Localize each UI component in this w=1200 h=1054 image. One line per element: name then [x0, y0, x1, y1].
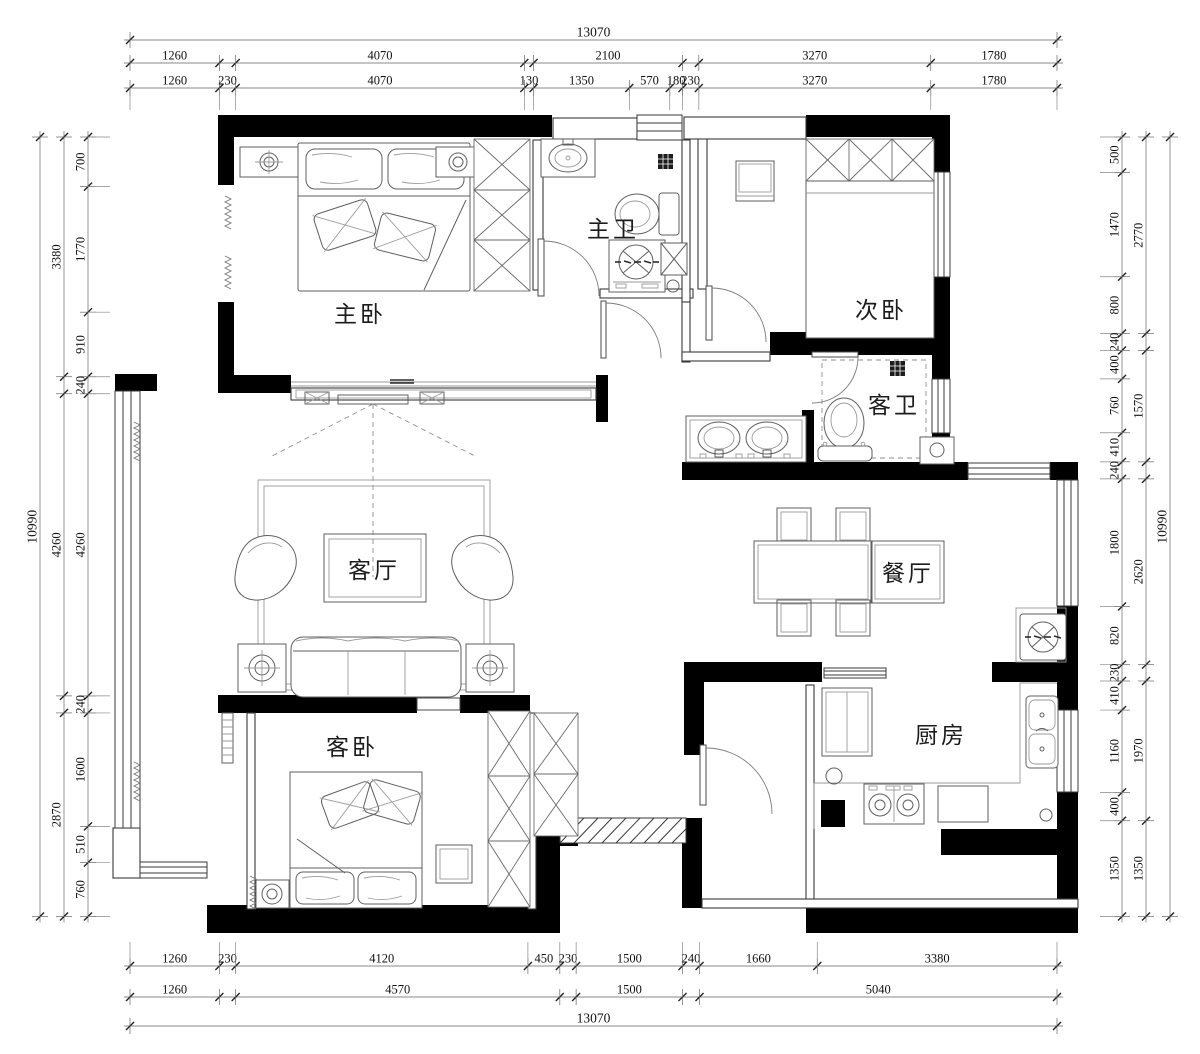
dim-label: 1160	[1108, 739, 1122, 764]
radiator-icon	[222, 713, 233, 763]
dim-label: 1470	[1108, 212, 1122, 237]
kitchen-sliding-door	[824, 668, 886, 678]
dim-label: 10990	[25, 510, 40, 544]
dim-label: 1350	[569, 74, 594, 88]
window-entry-hatch	[560, 818, 686, 843]
dining-table	[754, 541, 872, 603]
dim-label: 13070	[577, 1011, 611, 1026]
room-label-master-bath: 主卫	[587, 216, 639, 242]
closet	[806, 139, 934, 181]
dim-label: 230	[218, 74, 237, 88]
dim-label: 400	[1108, 355, 1122, 374]
room-label-kitchen: 厨房	[915, 722, 967, 748]
fridge	[822, 688, 872, 756]
kitchen: 厨房	[814, 608, 1066, 829]
dimension-chain-left-mid: 338042602870	[50, 131, 73, 922]
dim-label: 1500	[617, 983, 642, 997]
second-bedroom: 次卧	[736, 139, 934, 338]
dim-label: 700	[74, 152, 88, 171]
dim-label: 4570	[385, 983, 410, 997]
dining-chair	[836, 508, 870, 544]
dim-label: 240	[1108, 333, 1122, 352]
dim-label: 820	[1108, 626, 1122, 645]
dim-label: 230	[218, 952, 237, 966]
dim-label: 1770	[74, 237, 88, 262]
dimension-chain-bottom-row-b: 1260457015005040	[124, 983, 1063, 1006]
worktop-board	[938, 786, 988, 822]
dining-chair	[777, 600, 811, 636]
dim-label: 1260	[162, 49, 187, 63]
dim-label: 510	[74, 835, 88, 854]
dim-label: 4070	[368, 49, 393, 63]
dimension-chain-top-row-a: 12604070210032701780	[124, 49, 1063, 72]
dim-label: 2100	[596, 49, 621, 63]
toilet	[818, 398, 872, 461]
master-bedroom-door	[538, 239, 599, 296]
dim-label: 1260	[162, 983, 187, 997]
living-room: 客厅	[235, 380, 591, 697]
dimension-chain-left-overall: 10990	[25, 131, 49, 922]
dim-label: 230	[1108, 663, 1122, 682]
side-table	[238, 644, 286, 692]
dim-label: 1260	[162, 952, 187, 966]
dim-label: 760	[74, 880, 88, 899]
dining-chair	[777, 508, 811, 544]
window-south-of-guest-bath	[968, 463, 1050, 479]
dim-label: 3380	[925, 952, 950, 966]
sofa	[291, 637, 461, 697]
floor-plan-page: 主卧	[0, 0, 1200, 1054]
dimension-chain-left-inner: 700177091024042602401600510760	[74, 131, 111, 922]
dim-label: 3380	[50, 244, 64, 269]
window-spring-icon	[225, 256, 231, 289]
window-top-bath	[637, 115, 682, 140]
wardrobe	[474, 139, 530, 291]
dim-label: 410	[1108, 438, 1122, 457]
room-label-master-bedroom: 主卧	[334, 301, 386, 327]
dim-label: 230	[559, 952, 578, 966]
washing-machine	[609, 240, 665, 292]
window-southwest	[140, 862, 207, 878]
floor-plan-drawing: 主卧	[0, 0, 1200, 1054]
dim-label: 500	[1108, 145, 1122, 164]
dimension-chain-top-overall: 13070	[124, 25, 1063, 49]
dining-room: 餐厅	[754, 508, 944, 636]
dim-label: 1600	[74, 757, 88, 782]
dim-label: 240	[682, 952, 701, 966]
floor-drain-icon	[1040, 809, 1052, 821]
dining-chair	[836, 600, 870, 636]
dim-label: 1780	[981, 74, 1006, 88]
side-table	[436, 845, 472, 883]
dim-label: 1800	[1108, 530, 1122, 555]
dim-label: 230	[681, 74, 700, 88]
dimension-chain-bottom-row-a: 12602304120450230150024016603380	[124, 942, 1063, 974]
dimension-chain-top-row-b: 12602304070130135057018023032701780	[124, 74, 1063, 111]
tv-projection-lines	[272, 404, 475, 577]
guest-bedroom: 客卧	[222, 711, 578, 908]
dimension-chain-bottom-overall: 13070	[124, 1011, 1063, 1035]
hall-closet	[534, 713, 578, 836]
room-label-dining-room: 餐厅	[882, 560, 934, 586]
dim-label: 10990	[1155, 510, 1170, 544]
hallway-door	[601, 301, 661, 358]
dimension-annotations: 1307012604070210032701780126023040701301…	[25, 25, 1179, 1035]
second-bedroom-door	[706, 286, 766, 342]
armchair	[235, 536, 296, 600]
dim-label: 450	[534, 952, 553, 966]
window-dining-east	[1057, 480, 1078, 606]
floor-drain-icon	[658, 154, 673, 169]
dimension-chain-right-inner: 5001470800240400760410240180082023041011…	[1100, 131, 1130, 922]
dim-label: 1970	[1132, 738, 1146, 763]
room-label-living-room: 客厅	[348, 557, 400, 583]
room-label-guest-bath: 客卫	[868, 392, 920, 418]
guest-bedroom-door	[417, 698, 460, 710]
dim-label: 4260	[74, 532, 88, 557]
dim-label: 1350	[1108, 856, 1122, 881]
label-smudge	[390, 380, 414, 383]
window-second-bedroom-east	[932, 172, 950, 277]
gas-stove	[864, 784, 924, 824]
dim-label: 1350	[1132, 856, 1146, 881]
dim-label: 5040	[866, 983, 891, 997]
window-guest-bath-east	[932, 379, 950, 433]
dim-label: 240	[1108, 461, 1122, 480]
dimension-chain-right-overall: 10990	[1155, 131, 1179, 922]
dim-label: 1260	[162, 74, 187, 88]
desk	[736, 161, 774, 201]
dim-label: 1570	[1132, 394, 1146, 419]
dim-label: 2870	[50, 802, 64, 827]
double-vanity	[686, 416, 806, 462]
guest-bathroom: 客卫	[686, 360, 954, 464]
dim-label: 800	[1108, 296, 1122, 315]
window-spring-icon	[225, 196, 231, 229]
dim-label: 570	[640, 74, 659, 88]
dim-label: 4260	[50, 532, 64, 557]
dim-label: 240	[74, 695, 88, 714]
entry-door	[700, 745, 772, 814]
dim-label: 240	[74, 376, 88, 395]
window-kitchen-east	[1057, 710, 1078, 792]
dim-label: 3270	[802, 49, 827, 63]
dim-label: 410	[1108, 686, 1122, 705]
dim-label: 760	[1108, 396, 1122, 415]
dim-label: 4070	[368, 74, 393, 88]
dim-label: 910	[74, 335, 88, 354]
kitchen-sink	[1026, 696, 1058, 768]
dim-label: 1660	[746, 952, 771, 966]
bed	[290, 772, 422, 908]
dim-label: 2620	[1132, 559, 1146, 584]
washing-machine	[1016, 608, 1066, 662]
wardrobe	[488, 711, 530, 907]
room-label-second-bedroom: 次卧	[855, 297, 907, 323]
dim-label: 1500	[617, 952, 642, 966]
nightstand	[436, 147, 480, 177]
dim-label: 1780	[981, 49, 1006, 63]
dim-label: 13070	[577, 25, 611, 40]
room-label-guest-bedroom: 客卧	[326, 734, 378, 760]
master-bedroom: 主卧	[240, 139, 530, 327]
side-table	[466, 644, 514, 692]
dim-label: 4120	[369, 952, 394, 966]
armchair	[452, 536, 513, 600]
floor-drain-icon	[826, 768, 842, 784]
dimension-chain-right-mid: 27701570262019701350	[1132, 131, 1155, 922]
sink	[541, 139, 595, 177]
dim-label: 400	[1108, 797, 1122, 816]
nightstand	[240, 147, 298, 177]
dim-label: 2770	[1132, 223, 1146, 248]
dim-label: 3270	[802, 74, 827, 88]
master-bathroom: 主卫	[541, 139, 687, 292]
nightstand	[256, 880, 289, 908]
drain-niche	[920, 437, 954, 464]
floor-drain-icon	[890, 361, 905, 376]
